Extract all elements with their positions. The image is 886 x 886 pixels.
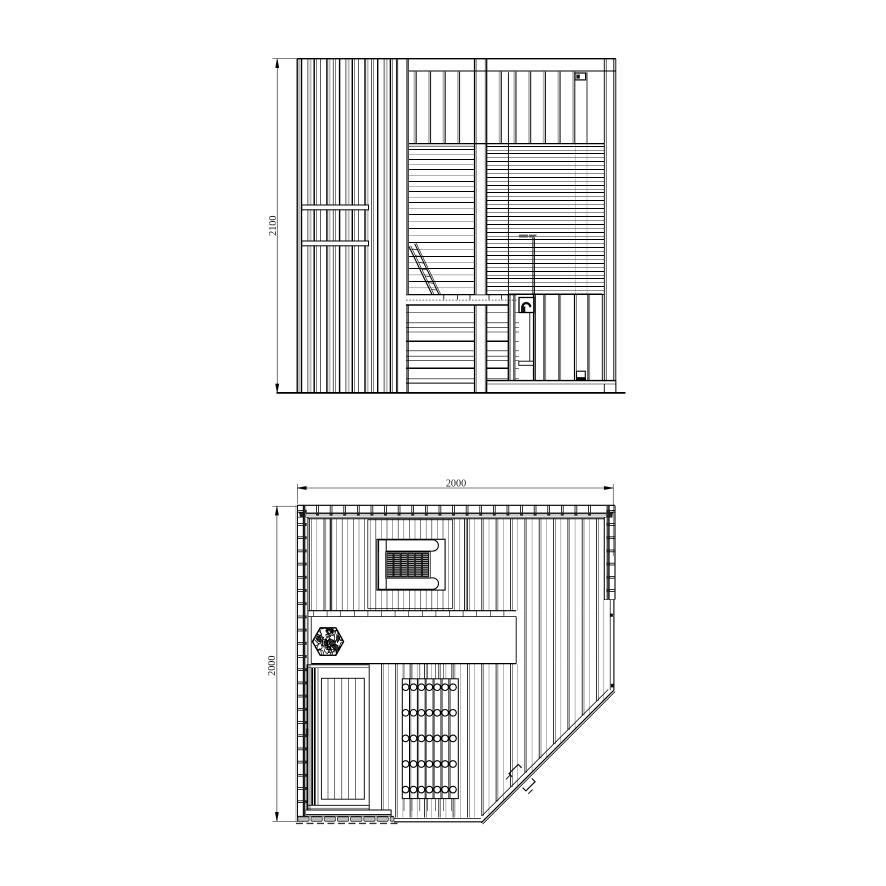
svg-text:2100: 2100 xyxy=(268,216,279,236)
svg-text:2000: 2000 xyxy=(446,479,466,490)
svg-text:2000: 2000 xyxy=(267,656,278,676)
